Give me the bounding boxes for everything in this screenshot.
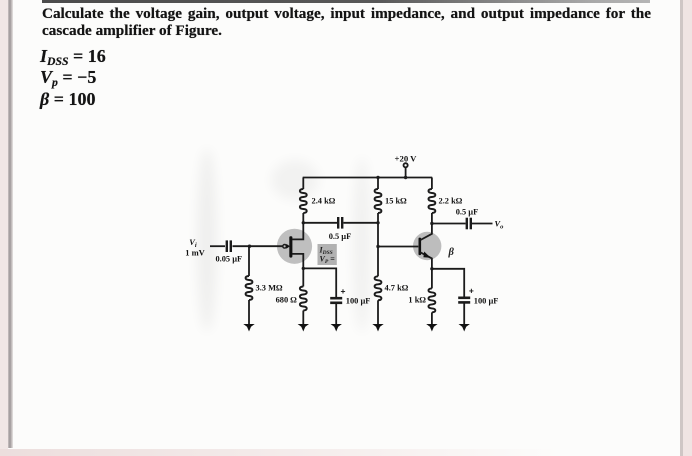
svg-text:4.7 kΩ: 4.7 kΩ [385,284,409,293]
svg-text:3.3 MΩ: 3.3 MΩ [256,284,283,293]
svg-text:100 µF: 100 µF [474,297,499,306]
svg-text:Vo: Vo [495,220,505,231]
svg-text:+: + [341,286,346,296]
svg-text:2.4 kΩ: 2.4 kΩ [312,197,336,206]
svg-text:0.5 µF: 0.5 µF [456,208,479,217]
svg-text:15 kΩ: 15 kΩ [385,197,407,206]
svg-text:β: β [448,247,455,258]
svg-text:2.2 kΩ: 2.2 kΩ [439,197,463,206]
svg-text:1 mV: 1 mV [185,248,205,258]
svg-text:1 kΩ: 1 kΩ [408,296,426,305]
svg-text:VP =: VP = [320,255,336,266]
svg-text:100 µF: 100 µF [346,297,371,306]
svg-text:0.5 µF: 0.5 µF [329,232,352,241]
svg-text:+20 V: +20 V [395,153,418,163]
svg-text:680 Ω: 680 Ω [276,296,298,305]
svg-text:+: + [469,286,474,296]
svg-text:0.05 µF: 0.05 µF [215,255,242,264]
